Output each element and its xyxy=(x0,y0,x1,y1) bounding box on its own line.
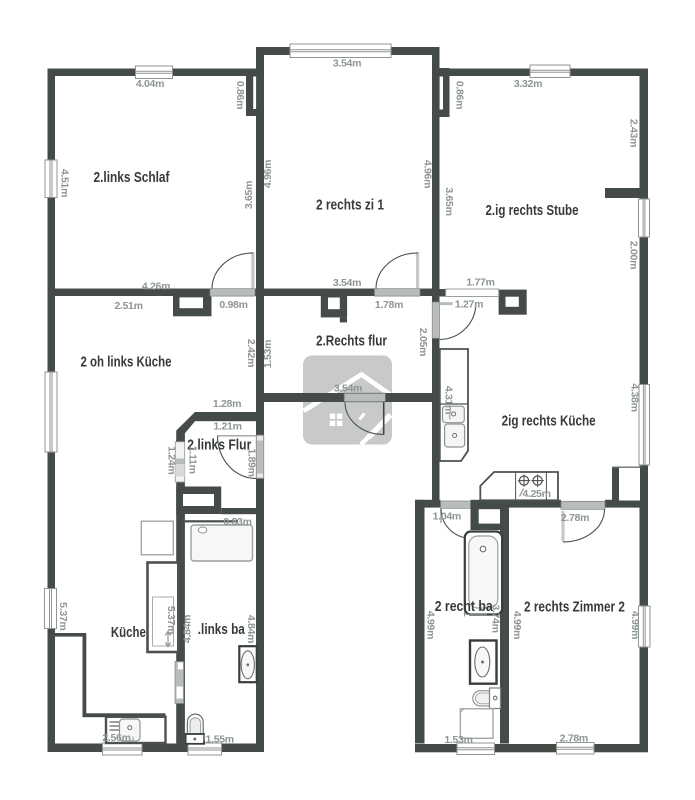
svg-text:4.38m: 4.38m xyxy=(629,383,641,411)
svg-text:1.53m: 1.53m xyxy=(444,734,472,746)
svg-text:2.43m: 2.43m xyxy=(628,119,640,147)
svg-text:4.84m: 4.84m xyxy=(245,615,257,643)
svg-text:0.83m: 0.83m xyxy=(223,516,251,528)
svg-text:4.51m: 4.51m xyxy=(58,169,70,197)
svg-text:1.53m: 1.53m xyxy=(262,340,274,368)
svg-text:4.31m: 4.31m xyxy=(443,386,455,414)
svg-text:3.65m: 3.65m xyxy=(243,181,255,209)
svg-text:2.78m: 2.78m xyxy=(561,512,589,524)
svg-text:2 rechts zi 1: 2 rechts zi 1 xyxy=(316,197,384,214)
svg-text:4.26m: 4.26m xyxy=(142,281,170,293)
svg-text:1.27m: 1.27m xyxy=(455,299,483,311)
svg-text:2.51m: 2.51m xyxy=(114,300,142,312)
svg-text:4.99m: 4.99m xyxy=(424,611,436,639)
svg-text:2.Rechts flur: 2.Rechts flur xyxy=(316,333,387,350)
svg-text:1.11m: 1.11m xyxy=(186,446,198,474)
svg-text:1.78m: 1.78m xyxy=(375,299,403,311)
svg-text:.links ba: .links ba xyxy=(198,621,246,638)
svg-text:2.00m: 2.00m xyxy=(628,241,640,269)
svg-text:4.99m: 4.99m xyxy=(629,611,641,639)
svg-text:2ig rechts Küche: 2ig rechts Küche xyxy=(502,413,596,430)
svg-text:4.84m: 4.84m xyxy=(182,615,194,643)
svg-text:4.99m: 4.99m xyxy=(511,611,523,639)
svg-text:2.ig rechts Stube: 2.ig rechts Stube xyxy=(486,202,579,219)
svg-text:1.89m: 1.89m xyxy=(245,448,257,476)
svg-text:3.54m: 3.54m xyxy=(333,58,361,70)
svg-text:4.96m: 4.96m xyxy=(422,160,434,188)
svg-text:1.24m: 1.24m xyxy=(166,446,178,474)
svg-text:4.04m: 4.04m xyxy=(136,78,164,90)
svg-text:5.37m: 5.37m xyxy=(165,606,177,634)
svg-text:5.37m: 5.37m xyxy=(57,602,69,630)
svg-text:1.21m: 1.21m xyxy=(213,421,241,433)
svg-text:Küche: Küche xyxy=(111,624,146,641)
svg-text:1.77m: 1.77m xyxy=(466,277,494,289)
svg-text:2.78m: 2.78m xyxy=(560,733,588,745)
svg-text:2.56m: 2.56m xyxy=(102,732,130,744)
svg-text:1.04m: 1.04m xyxy=(433,511,461,523)
svg-text:2 oh links Küche: 2 oh links Küche xyxy=(81,354,172,371)
svg-text:3.74m: 3.74m xyxy=(489,604,501,632)
svg-text:1.28m: 1.28m xyxy=(213,398,241,410)
svg-text:2 rechts Zimmer 2: 2 rechts Zimmer 2 xyxy=(524,599,625,616)
svg-text:3.32m: 3.32m xyxy=(514,78,542,90)
svg-text:2.05m: 2.05m xyxy=(417,328,429,356)
svg-text:3.54m: 3.54m xyxy=(334,383,362,395)
svg-text:2 recht ba: 2 recht ba xyxy=(435,598,494,615)
svg-text:0.86m: 0.86m xyxy=(454,81,466,109)
svg-text:3.65m: 3.65m xyxy=(443,187,455,215)
svg-text:2.42m: 2.42m xyxy=(245,339,257,367)
svg-text:2.links Schlaf: 2.links Schlaf xyxy=(94,169,171,186)
svg-text:1.55m: 1.55m xyxy=(206,734,234,746)
svg-text:3.54m: 3.54m xyxy=(333,277,361,289)
svg-text:4.96m: 4.96m xyxy=(262,160,274,188)
svg-text:0.98m: 0.98m xyxy=(219,299,247,311)
svg-text:4.25m: 4.25m xyxy=(522,488,550,500)
svg-text:0.86m: 0.86m xyxy=(234,81,246,109)
